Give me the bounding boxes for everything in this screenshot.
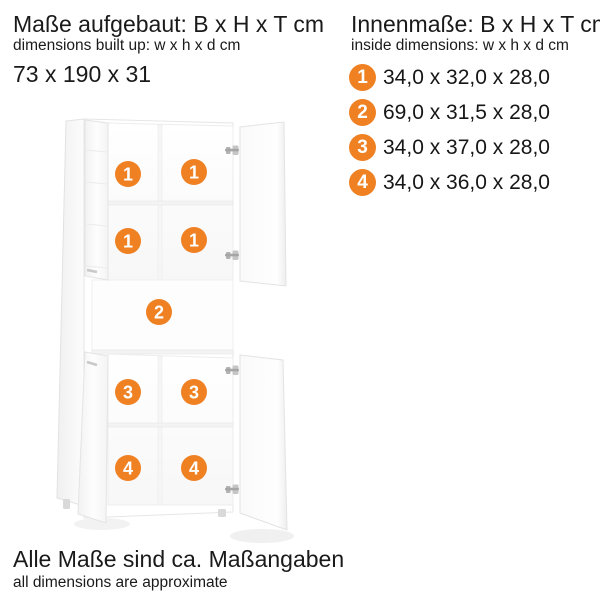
item-dimensions-text: 34,0 x 37,0 x 28,0 [383,136,550,160]
item-dimensions-text: 34,0 x 32,0 x 28,0 [383,66,550,90]
compartment-marker: 1 [181,159,207,185]
marker-label: 3 [189,383,199,403]
built-dimensions-value: 73 x 190 x 31 [13,61,324,88]
compartment-marker: 2 [146,299,172,325]
upper-compartments [108,123,233,280]
compartment-marker: 1 [181,227,207,253]
built-dimensions-subtitle: dimensions built up: w x h x d cm [13,37,324,55]
door-panel [85,120,108,280]
shelf [108,423,233,427]
cabinet-left-side-panel [57,119,84,506]
marker-label: 1 [123,232,133,252]
compartment-marker: 4 [181,455,207,481]
dimensions-note-de: Alle Maße sind ca. Maßangaben [13,546,344,572]
list-item: 1 34,0 x 32,0 x 28,0 [349,64,600,91]
inside-dimensions-title: Innenmaße: B x H x T cm [349,11,600,37]
cabinet-foot [218,509,226,517]
dimensions-note-block: Alle Maße sind ca. Maßangaben all dimens… [13,546,344,592]
cabinet-foot [63,499,70,509]
list-item: 3 34,0 x 37,0 x 28,0 [349,134,600,161]
marker-label: 3 [123,383,133,403]
item-number-badge: 2 [349,99,376,126]
built-dimensions-block: Maße aufgebaut: B x H x T cm dimensions … [13,11,324,88]
marker-label: 1 [189,163,199,183]
compartment-marker: 3 [115,379,141,405]
compartment-marker: 4 [115,455,141,481]
center-divider [158,356,162,505]
upper-left-door [85,120,108,280]
item-dimensions-text: 69,0 x 31,5 x 28,0 [383,101,550,125]
marker-label: 4 [123,459,133,479]
list-item: 4 34,0 x 36,0 x 28,0 [349,169,600,196]
niche-bottom-shelf [92,350,233,354]
marker-label: 1 [123,165,133,185]
upper-right-door [240,122,286,286]
compartment-marker: 1 [115,161,141,187]
built-dimensions-title: Maße aufgebaut: B x H x T cm [13,11,324,37]
marker-label: 1 [189,231,199,251]
item-dimensions-text: 34,0 x 36,0 x 28,0 [383,171,550,195]
shelf [108,201,233,205]
lower-compartments [108,354,233,517]
item-number-badge: 1 [349,64,376,91]
marker-label: 4 [189,459,199,479]
dimensions-note-en: all dimensions are approximate [13,574,344,592]
compartment-marker: 3 [181,379,207,405]
cabinet-illustration: 1 1 1 1 2 3 3 4 [50,110,295,570]
item-number-badge: 3 [349,134,376,161]
inside-dimensions-subtitle: inside dimensions: w x h x d cm [349,37,600,55]
lower-interior [108,354,233,505]
inside-dimensions-block: Innenmaße: B x H x T cm inside dimension… [349,11,600,204]
item-number-badge: 4 [349,169,376,196]
list-item: 2 69,0 x 31,5 x 28,0 [349,99,600,126]
marker-label: 2 [154,303,164,323]
inside-dimensions-list: 1 34,0 x 32,0 x 28,0 2 69,0 x 31,5 x 28,… [349,64,600,196]
product-dimension-sheet: Maße aufgebaut: B x H x T cm dimensions … [0,0,600,600]
compartment-marker: 1 [115,228,141,254]
floor-shadow [230,529,294,543]
lower-right-door [240,355,287,530]
